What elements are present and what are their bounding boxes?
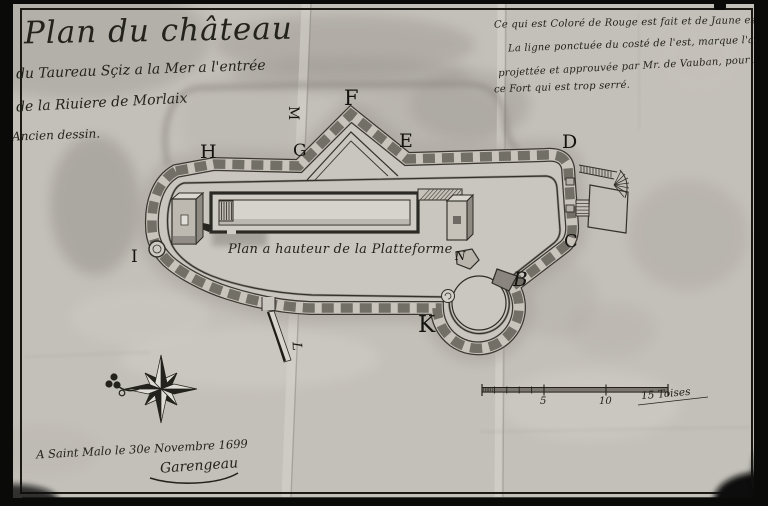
- marker-c: C: [564, 233, 578, 251]
- scale-label-15-toises: 15 Toises: [641, 387, 691, 402]
- marker-m: M: [286, 106, 300, 120]
- legend-line2: La ligne ponctuée du costé de l'est, mar…: [508, 34, 768, 55]
- text-layer: Plan du château du Taureau Sçiz a la Mer…: [0, 0, 768, 506]
- photo-edge-bottom: [0, 498, 768, 506]
- map-title: Plan du château: [24, 14, 293, 50]
- photo-edge-left: [0, 0, 13, 506]
- signature: Garengeau: [160, 456, 239, 475]
- plan-caption: Plan a hauteur de la Platteforme: [228, 243, 453, 256]
- marker-f: F: [344, 88, 359, 109]
- scale-label-10: 10: [599, 397, 612, 407]
- marker-b: B: [513, 269, 528, 289]
- marker-e: E: [399, 132, 413, 151]
- photographed-map: Plan du château du Taureau Sçiz a la Mer…: [0, 0, 768, 506]
- photo-edge-right: [754, 0, 768, 506]
- marker-n: N: [455, 250, 466, 262]
- marker-d: D: [562, 133, 577, 152]
- map-subtitle-line1: du Taureau Sçiz a la Mer a l'entrée: [16, 59, 266, 82]
- scale-label-5: 5: [540, 397, 546, 407]
- legend-line1: Ce qui est Coloré de Rouge est fait et d…: [494, 15, 768, 30]
- marker-g: G: [293, 143, 307, 160]
- map-subtitle-line2: de la Riuiere de Morlaix: [16, 92, 188, 115]
- photo-edge-top: [0, 0, 768, 4]
- map-note: Ancien dessin.: [12, 127, 100, 142]
- marker-l: L: [290, 342, 303, 351]
- legend-line4: ce Fort qui est trop serré.: [494, 81, 630, 96]
- legend-line3: projettée et approuvée par Mr. de Vauban…: [498, 53, 768, 79]
- marker-k: K: [418, 314, 435, 337]
- marker-h: H: [200, 143, 217, 162]
- marker-i: I: [131, 249, 138, 266]
